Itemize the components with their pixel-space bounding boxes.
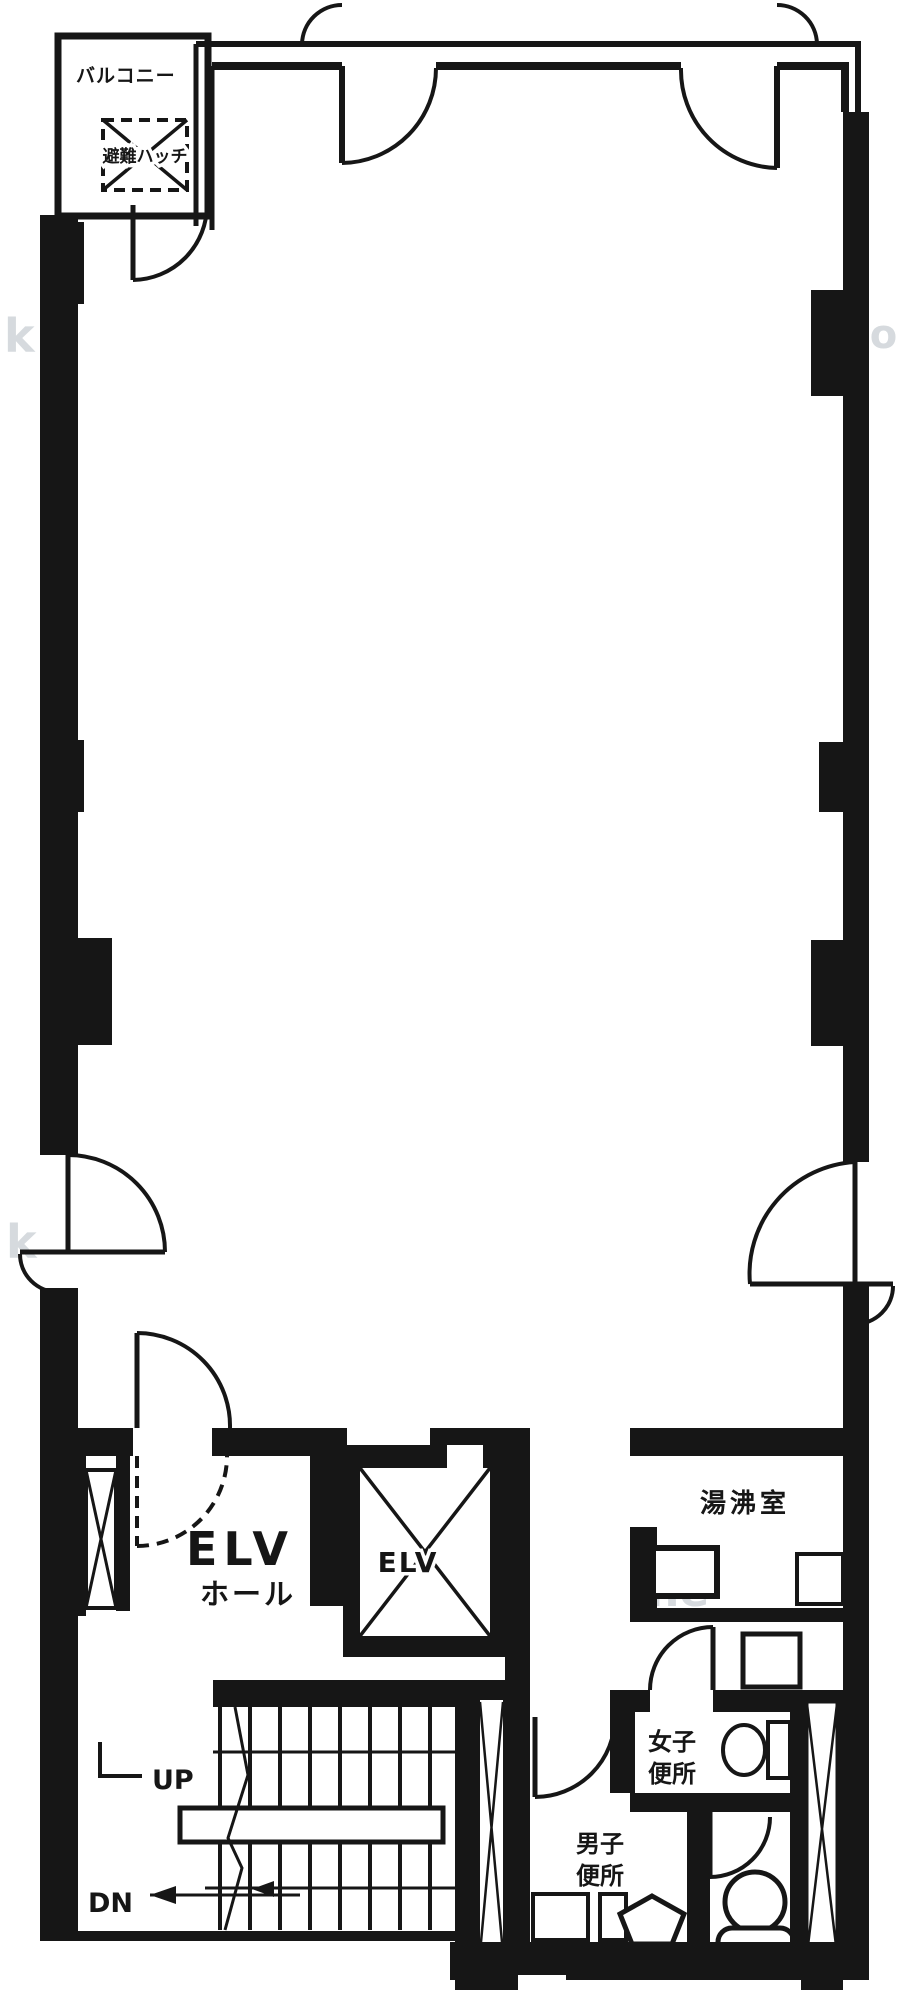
elv-hall-label-line1: ELV [186, 1522, 294, 1576]
door-outswing-arc [302, 5, 342, 44]
door-arc [650, 1627, 713, 1690]
womens-label-line2: 便所 [648, 1760, 696, 1788]
column [811, 290, 845, 396]
stair-treads-lower [220, 1842, 430, 1930]
wall-segment [505, 1456, 530, 1680]
fixture-panel [743, 1634, 800, 1687]
elevator-hall: ELV ホール [78, 1456, 343, 1616]
evacuation-hatch-label: 避難ハッチ [103, 146, 188, 167]
wall-segment [212, 1428, 347, 1456]
parapet-line [196, 44, 858, 112]
column [811, 940, 845, 1046]
watermark-text: k [4, 309, 36, 363]
elv-hall-label-line2: ホール [200, 1577, 296, 1611]
door-arc [342, 68, 436, 163]
column [40, 938, 112, 1045]
door-arc [750, 1162, 855, 1284]
wall-segment [843, 112, 869, 1162]
wall-segment [777, 66, 845, 112]
door-arc [137, 1333, 230, 1428]
column [40, 222, 84, 304]
mens-label-line1: 男子 [576, 1830, 624, 1858]
floor-plan: k io k ne fi バルコニー 避難ハッチ [0, 0, 907, 2014]
wall-segment [610, 1690, 650, 1712]
stair-up-label: UP [152, 1765, 194, 1796]
door-arc [681, 68, 777, 168]
elevator-shaft: ELV [343, 1445, 505, 1657]
bottom-wall [450, 1942, 869, 2014]
sink [653, 1548, 717, 1596]
elevator-door-slot [447, 1445, 483, 1470]
up-bracket [100, 1742, 142, 1776]
kitchenette-label: 湯沸室 [700, 1488, 790, 1519]
counter-front [630, 1608, 843, 1622]
partition [533, 1894, 588, 1940]
elv-shaft-label: ELV [378, 1546, 439, 1579]
dn-arrow-head [150, 1886, 176, 1904]
stair-treads-upper [220, 1707, 430, 1806]
left-wall [20, 215, 165, 1938]
service-hatch [797, 1554, 843, 1604]
column [40, 740, 84, 812]
wall-segment [687, 1812, 710, 1960]
wall-segment [116, 1456, 130, 1611]
toilet-bowl [723, 1725, 765, 1775]
urinal [620, 1896, 684, 1944]
wall-segment [843, 1286, 869, 1980]
womens-label-line1: 女子 [648, 1728, 696, 1756]
door-arc [710, 1817, 770, 1877]
wall-segment [310, 1456, 343, 1606]
entry-notch [518, 1975, 566, 2014]
toilet-tank [768, 1722, 790, 1778]
wall-segment [78, 1428, 133, 1456]
door-outswing-arc [777, 5, 817, 44]
door-arc [68, 1155, 165, 1252]
wall-segment [213, 1680, 455, 1707]
stair-dn-label: DN [88, 1888, 133, 1919]
floor-plan-page: k io k ne fi バルコニー 避難ハッチ [0, 0, 907, 2014]
column [819, 742, 845, 812]
toilet-bowl [725, 1872, 785, 1932]
stair-landing [180, 1808, 443, 1842]
door-arc [535, 1717, 615, 1797]
wall-segment [450, 1942, 869, 1980]
wall-segment [40, 1288, 78, 1938]
balcony-label: バルコニー [76, 65, 176, 87]
mens-label-line2: 便所 [576, 1862, 624, 1890]
top-wall [196, 5, 858, 168]
wall-segment [630, 1428, 843, 1456]
